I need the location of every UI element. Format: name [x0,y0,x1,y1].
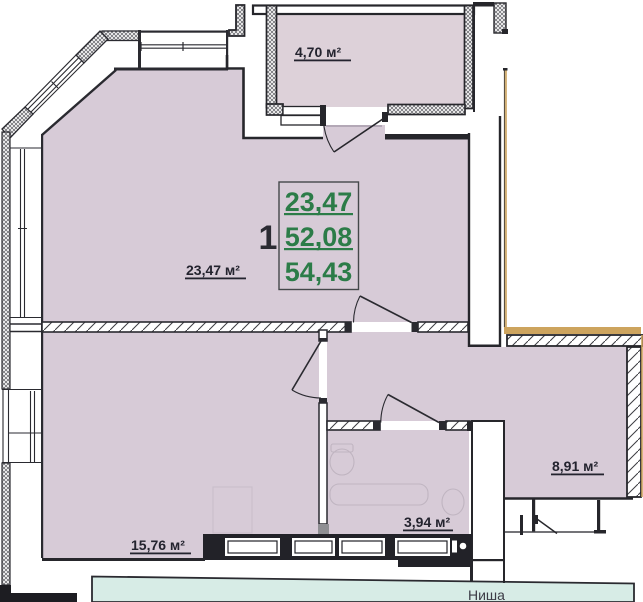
svg-text:4,70 м²: 4,70 м² [295,44,341,60]
svg-text:23,47 м²: 23,47 м² [186,262,240,278]
svg-text:15,76 м²: 15,76 м² [131,537,185,553]
svg-text:1: 1 [259,219,278,257]
svg-text:3,94 м²: 3,94 м² [404,514,450,530]
svg-text:52,08: 52,08 [285,222,353,252]
svg-text:23,47: 23,47 [285,187,353,217]
svg-text:8,91 м²: 8,91 м² [552,458,598,474]
svg-text:Ниша: Ниша [468,587,505,602]
svg-text:54,43: 54,43 [285,257,353,287]
